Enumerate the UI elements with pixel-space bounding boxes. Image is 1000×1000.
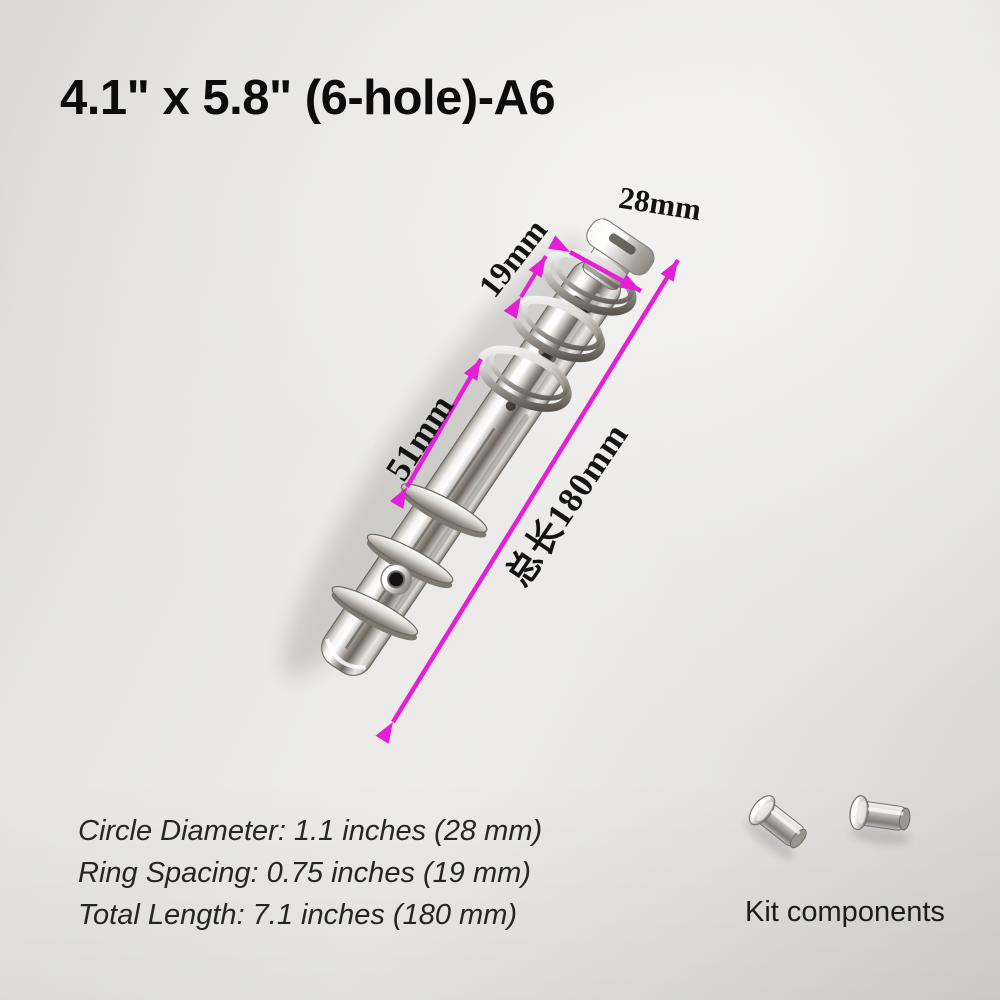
spec-text-block: Circle Diameter: 1.1 inches (28 mm) Ring… [78,810,542,936]
spec-ring-spacing: Ring Spacing: 0.75 inches (19 mm) [78,852,542,894]
product-photo-canvas: 4.1" x 5.8" (6-hole)-A6 28mm 19mm 51mm 总… [0,0,1000,1000]
spec-total-length: Total Length: 7.1 inches (180 mm) [78,894,542,936]
rivet-right [846,795,915,848]
rivet-left [739,791,815,864]
kit-components-label: Kit components [745,896,945,929]
product-title: 4.1" x 5.8" (6-hole)-A6 [60,70,555,126]
spec-circle-diameter: Circle Diameter: 1.1 inches (28 mm) [78,810,542,852]
